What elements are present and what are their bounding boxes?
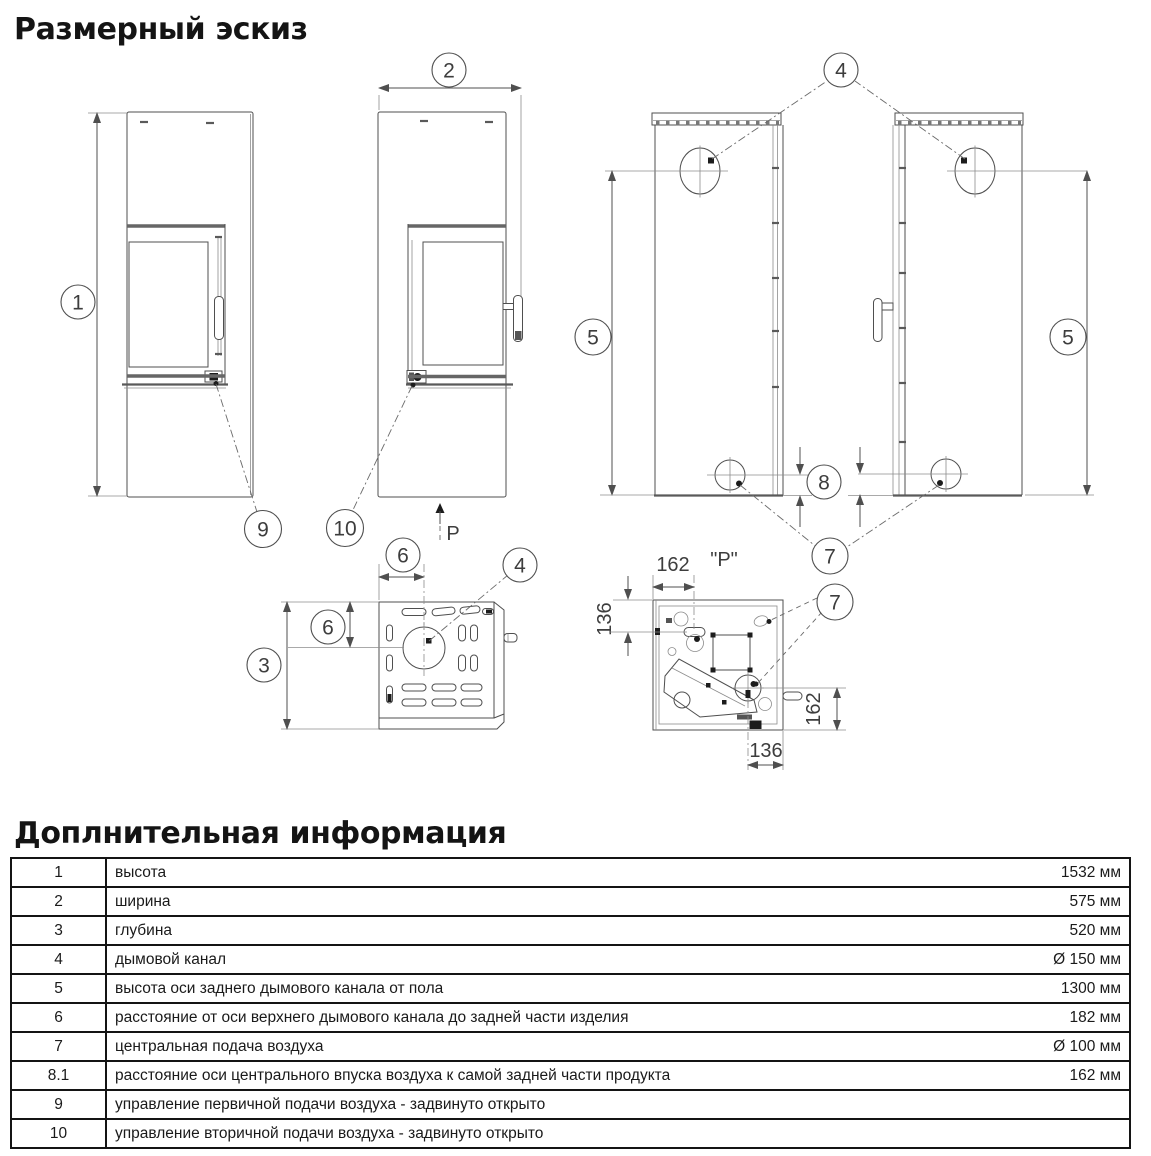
table-row: 7центральная подача воздухаØ 100 мм <box>12 1033 1129 1062</box>
table-cell-number: 4 <box>12 946 107 973</box>
svg-text:7: 7 <box>824 546 836 569</box>
top-view: 6 6 3 4 <box>247 538 537 729</box>
table-row: 10управление вторичной подачи воздуха - … <box>12 1120 1129 1149</box>
stove-side-view: 2 10 P <box>327 53 523 547</box>
svg-text:5: 5 <box>587 327 599 350</box>
svg-text:5: 5 <box>1062 327 1074 350</box>
svg-text:P: P <box>446 523 459 545</box>
flue-callout-group: 4 <box>712 53 965 159</box>
svg-text:10: 10 <box>333 518 356 541</box>
dimension-sheet: Размерный эскиз <box>0 0 1151 1156</box>
table-row: 9управление первичной подачи воздуха - з… <box>12 1091 1129 1120</box>
table-cell-description: высота оси заднего дымового канала от по… <box>107 975 969 1002</box>
table-cell-value: Ø 150 мм <box>969 946 1129 973</box>
table-row: 5высота оси заднего дымового канала от п… <box>12 975 1129 1004</box>
svg-text:8: 8 <box>818 472 830 495</box>
table-cell-description: управление вторичной подачи воздуха - за… <box>107 1120 969 1147</box>
table-cell-description: глубина <box>107 917 969 944</box>
door-handle <box>874 299 883 342</box>
info-title: Доплнительная информация <box>14 816 506 851</box>
table-cell-description: центральная подача воздуха <box>107 1033 969 1060</box>
table-row: 8.1расстояние оси центрального впуска во… <box>12 1062 1129 1091</box>
table-row: 1высота1532 мм <box>12 859 1129 888</box>
table-cell-value: 520 мм <box>969 917 1129 944</box>
air-inlet-dim-group: 8 7 <box>783 447 893 574</box>
table-cell-number: 1 <box>12 859 107 886</box>
table-row: 4дымовой каналØ 150 мм <box>12 946 1129 975</box>
svg-text:4: 4 <box>514 555 526 578</box>
table-cell-number: 2 <box>12 888 107 915</box>
rear-view-left: 5 <box>575 113 819 549</box>
table-row: 6расстояние от оси верхнего дымового кан… <box>12 1004 1129 1033</box>
table-cell-description: дымовой канал <box>107 946 969 973</box>
table-cell-value: 182 мм <box>969 1004 1129 1031</box>
svg-text:1: 1 <box>72 292 84 315</box>
direction-p-arrow: P <box>436 503 460 545</box>
bottom-view-p: "P" <box>594 549 853 770</box>
door-handle <box>215 297 224 340</box>
svg-text:162: 162 <box>803 692 825 725</box>
table-cell-number: 3 <box>12 917 107 944</box>
table-cell-number: 8.1 <box>12 1062 107 1089</box>
table-cell-number: 10 <box>12 1120 107 1147</box>
stove-front-view: 1 9 <box>61 112 282 548</box>
table-cell-description: управление первичной подачи воздуха - за… <box>107 1091 969 1118</box>
table-cell-number: 9 <box>12 1091 107 1118</box>
table-cell-number: 5 <box>12 975 107 1002</box>
table-row: 2ширина575 мм <box>12 888 1129 917</box>
table-cell-number: 7 <box>12 1033 107 1060</box>
svg-text:9: 9 <box>257 519 269 542</box>
table-cell-description: расстояние оси центрального впуска возду… <box>107 1062 969 1089</box>
dimension-drawing: 1 9 <box>0 0 1151 810</box>
svg-text:2: 2 <box>443 60 455 83</box>
svg-text:4: 4 <box>835 60 847 83</box>
svg-text:136: 136 <box>594 602 616 635</box>
table-cell-number: 6 <box>12 1004 107 1031</box>
svg-text:7: 7 <box>829 592 841 615</box>
table-cell-value <box>969 1091 1129 1118</box>
svg-text:3: 3 <box>258 655 270 678</box>
table-row: 3глубина520 мм <box>12 917 1129 946</box>
svg-text:136: 136 <box>749 740 782 762</box>
svg-text:6: 6 <box>322 617 334 640</box>
view-p-label: "P" <box>710 549 738 571</box>
table-cell-value: 162 мм <box>969 1062 1129 1089</box>
table-cell-description: ширина <box>107 888 969 915</box>
rear-view-right: 5 <box>844 113 1094 549</box>
table-cell-description: расстояние от оси верхнего дымового кана… <box>107 1004 969 1031</box>
table-cell-value: 1300 мм <box>969 975 1129 1002</box>
svg-text:6: 6 <box>397 545 409 568</box>
svg-text:162: 162 <box>656 554 689 576</box>
table-cell-value: 1532 мм <box>969 859 1129 886</box>
table-cell-value <box>969 1120 1129 1147</box>
table-cell-value: Ø 100 мм <box>969 1033 1129 1060</box>
table-cell-value: 575 мм <box>969 888 1129 915</box>
table-cell-description: высота <box>107 859 969 886</box>
info-table: 1высота1532 мм2ширина575 мм3глубина520 м… <box>10 857 1131 1149</box>
vent-slots <box>387 605 494 706</box>
